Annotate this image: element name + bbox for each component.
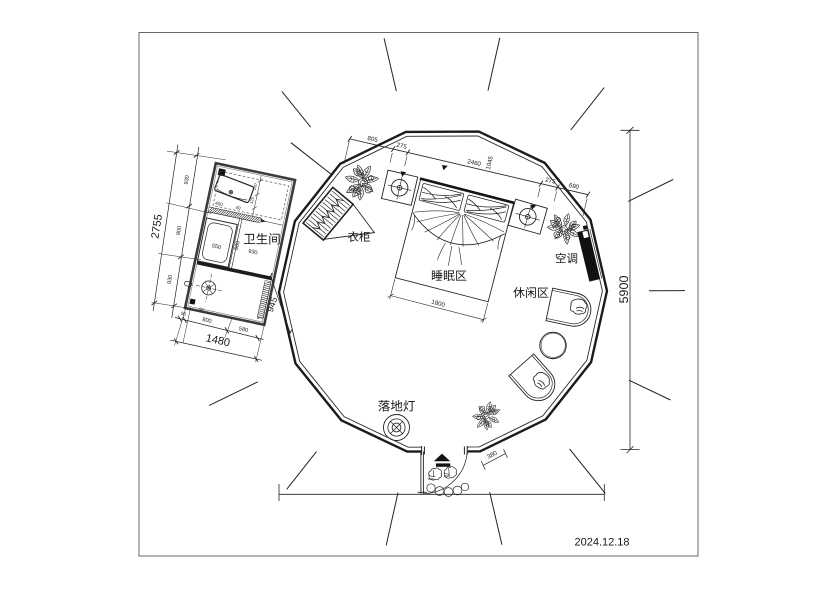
svg-text:930: 930	[167, 274, 174, 284]
svg-text:275: 275	[396, 142, 408, 151]
svg-text:90: 90	[180, 311, 187, 317]
svg-text:1480: 1480	[205, 332, 231, 349]
svg-text:1045: 1045	[485, 155, 495, 171]
svg-text:275: 275	[544, 176, 556, 185]
svg-text:1800: 1800	[431, 299, 447, 309]
svg-text:900: 900	[176, 226, 183, 236]
svg-text:800: 800	[202, 317, 212, 325]
svg-text:2755: 2755	[150, 213, 165, 239]
svg-text:580: 580	[238, 326, 248, 334]
svg-text:5900: 5900	[617, 276, 631, 304]
svg-text:690: 690	[568, 182, 580, 191]
svg-text:2024.12.18: 2024.12.18	[574, 537, 629, 549]
svg-text:805: 805	[367, 135, 379, 144]
svg-text:930: 930	[184, 175, 191, 185]
svg-text:380: 380	[486, 449, 499, 460]
